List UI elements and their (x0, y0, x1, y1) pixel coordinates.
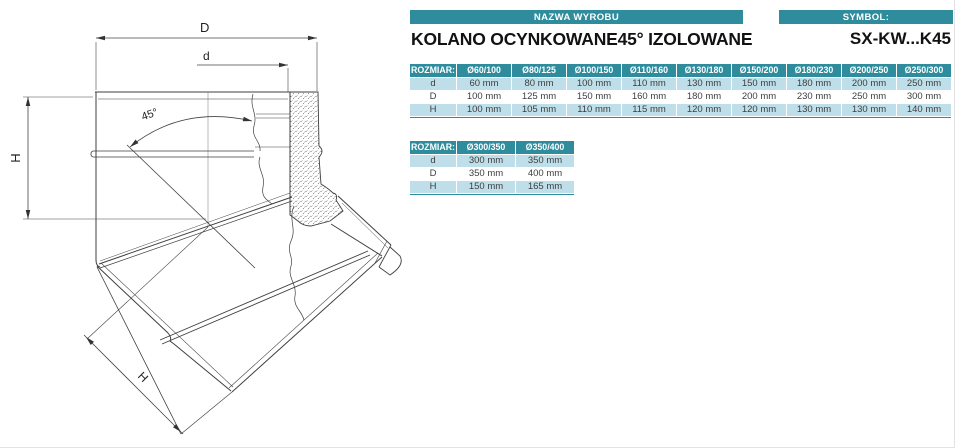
value-cell: 250 mm (842, 91, 896, 103)
insulation-stipple (290, 92, 343, 226)
value-cell: 100 mm (567, 78, 621, 90)
row-label: H (410, 104, 456, 116)
value-cell: 105 mm (512, 104, 566, 116)
value-cell: 110 mm (622, 78, 676, 90)
datasheet-page: D d H 45° H NAZWA WYROBU SYMBOL: KOLANO … (0, 0, 955, 448)
outlet-end (331, 196, 401, 275)
column-header: Ø300/350 (457, 141, 515, 154)
product-name-header-label: NAZWA WYROBU (534, 12, 619, 23)
value-cell: 150 mm (457, 181, 515, 193)
value-cell: 160 mm (622, 91, 676, 103)
product-title: KOLANO OCYNKOWANE45° IZOLOWANE (411, 29, 752, 50)
table-corner-label: ROZMIAR: (410, 64, 456, 77)
value-cell: 130 mm (787, 104, 841, 116)
value-cell: 250 mm (897, 78, 951, 90)
value-cell: 60 mm (457, 78, 511, 90)
dim-label-inner-diameter: d (203, 49, 210, 63)
value-cell: 300 mm (457, 155, 515, 167)
value-cell: 400 mm (516, 168, 574, 180)
value-cell: 125 mm (512, 91, 566, 103)
column-header: Ø130/180 (677, 64, 731, 77)
dim-label-height-angled: H (135, 369, 151, 385)
table-corner-label: ROZMIAR: (410, 141, 456, 154)
value-cell: 130 mm (677, 78, 731, 90)
dim-label-outer-diameter: D (200, 20, 209, 35)
value-cell: 100 mm (457, 91, 511, 103)
value-cell: 165 mm (516, 181, 574, 193)
dim-label-height-vertical: H (8, 153, 23, 162)
row-label: H (410, 181, 456, 193)
value-cell: 130 mm (842, 104, 896, 116)
angle-label: 45° (140, 106, 160, 123)
column-header: Ø200/250 (842, 64, 896, 77)
value-cell: 140 mm (897, 104, 951, 116)
value-cell: 110 mm (567, 104, 621, 116)
symbol-header-bar: SYMBOL: (779, 10, 953, 24)
value-cell: 230 mm (787, 91, 841, 103)
value-cell: 200 mm (842, 78, 896, 90)
column-header: Ø250/300 (897, 64, 951, 77)
column-header: Ø110/160 (622, 64, 676, 77)
value-cell: 150 mm (567, 91, 621, 103)
size-table-main: ROZMIAR:Ø60/100Ø80/125Ø100/150Ø110/160Ø1… (410, 64, 951, 118)
value-cell: 100 mm (457, 104, 511, 116)
value-cell: 350 mm (457, 168, 515, 180)
row-label: d (410, 78, 456, 90)
column-header: Ø350/400 (516, 141, 574, 154)
value-cell: 120 mm (732, 104, 786, 116)
value-cell: 180 mm (787, 78, 841, 90)
row-label: D (410, 168, 456, 180)
value-cell: 120 mm (677, 104, 731, 116)
column-header: Ø100/150 (567, 64, 621, 77)
pipe-outline (91, 92, 318, 268)
value-cell: 150 mm (732, 78, 786, 90)
symbol-header-label: SYMBOL: (843, 12, 890, 23)
value-cell: 115 mm (622, 104, 676, 116)
value-cell: 350 mm (516, 155, 574, 167)
column-header: Ø180/230 (787, 64, 841, 77)
product-name-header-bar: NAZWA WYROBU (410, 10, 743, 24)
row-label: d (410, 155, 456, 167)
value-cell: 200 mm (732, 91, 786, 103)
technical-drawing: D d H 45° H (0, 0, 410, 448)
value-cell: 80 mm (512, 78, 566, 90)
elbow-drawing-svg: D d H 45° H (0, 0, 410, 448)
column-header: Ø80/125 (512, 64, 566, 77)
symbol-value: SX-KW...K45 (779, 29, 951, 49)
column-header: Ø150/200 (732, 64, 786, 77)
value-cell: 300 mm (897, 91, 951, 103)
row-label: D (410, 91, 456, 103)
size-table-large-sizes: ROZMIAR:Ø300/350Ø350/400d300 mm350 mmD35… (410, 141, 574, 195)
column-header: Ø60/100 (457, 64, 511, 77)
value-cell: 180 mm (677, 91, 731, 103)
dimension-arrows (26, 36, 317, 434)
